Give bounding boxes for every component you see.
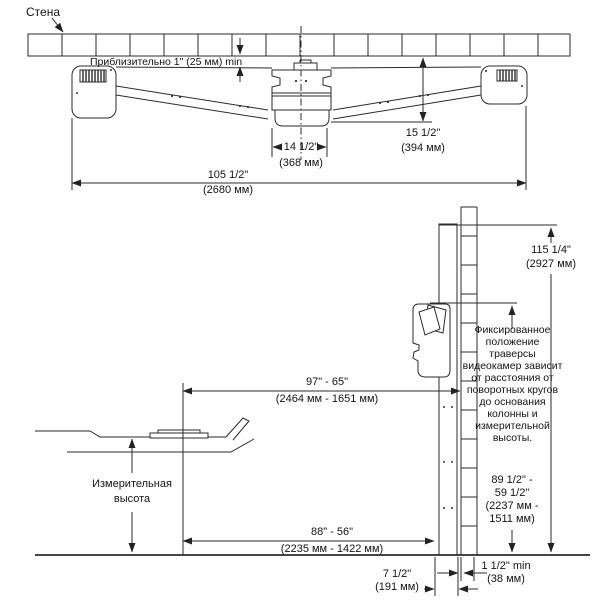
right-camera-pod-icon — [481, 66, 527, 104]
measuring-height-label: Измерительная высота — [72, 477, 192, 507]
column-height-dimension: 115 1/4" (2927 мм) — [508, 243, 594, 271]
wall — [28, 34, 570, 56]
overall-width-dimension: 105 1/2" (2680 мм) — [187, 168, 269, 198]
gap-dimension-label: Приблизительно 1" (25 мм) min — [90, 55, 260, 69]
turnplate-to-column-dimension: 97" - 65" (2464 мм - 1651 мм) — [257, 374, 397, 408]
floor-distance-dimension: 88" - 56" (2235 мм - 1422 мм) — [252, 524, 412, 558]
wall-leader-arrow — [52, 18, 63, 32]
bracket-width-dimension: 14 1/2" (368 мм) — [265, 139, 337, 171]
left-camera-pod-icon — [72, 66, 116, 118]
wall-clearance-dimension: 1 1/2" min (38 мм) — [461, 560, 551, 586]
wall-to-beam-dimension: 15 1/2" (394 мм) — [387, 126, 459, 156]
installation-diagram: Стена Приблизительно 1" (25 мм) min 15 1… — [0, 0, 600, 600]
wall-label: Стена — [26, 5, 86, 19]
runway-platform — [35, 418, 254, 452]
camera-position-note: Фиксированное положение траверсы видеока… — [462, 324, 563, 444]
camera-pod-side-icon — [413, 304, 450, 377]
lift-post — [439, 224, 457, 555]
camera-beam-height-dimension: 89 1/2" - 59 1/2" (2237 мм - 1511 мм) — [462, 474, 562, 526]
column-depth-dimension: 7 1/2" (191 мм) — [352, 568, 442, 594]
